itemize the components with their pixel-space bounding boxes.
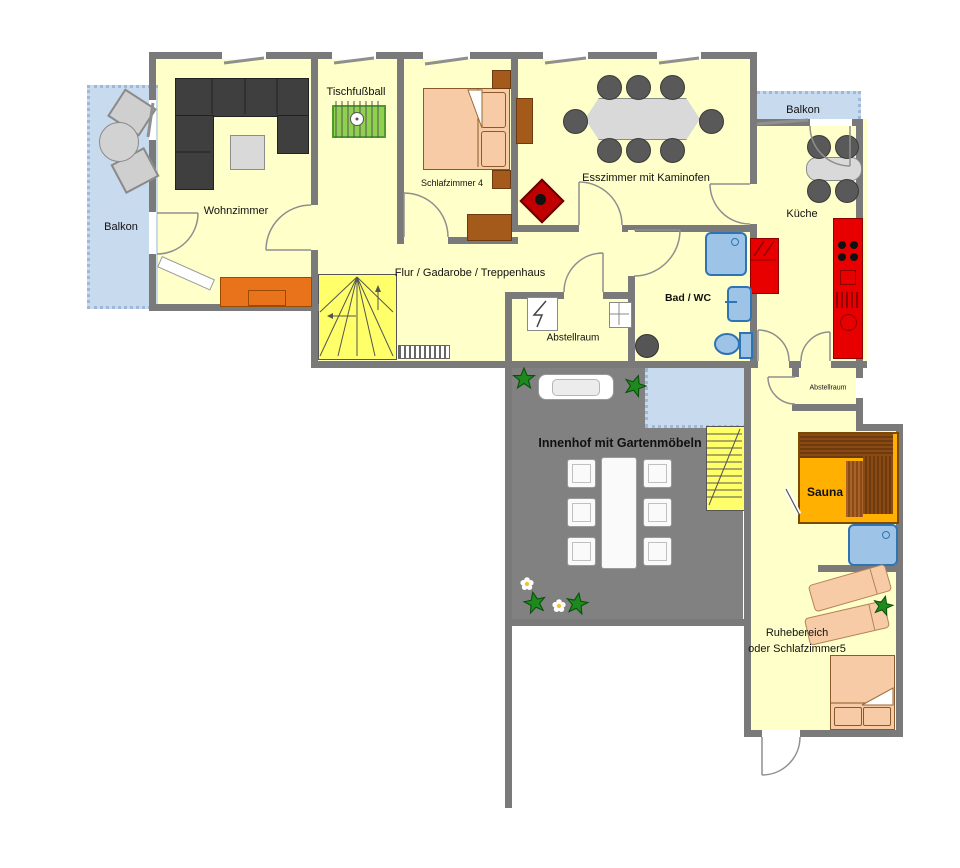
nightstand xyxy=(492,170,511,189)
dining-chair xyxy=(626,75,651,100)
dining-chair xyxy=(597,75,622,100)
dining-chair xyxy=(626,138,651,163)
door-opening xyxy=(404,237,448,244)
window-opening xyxy=(222,52,266,59)
dining-chair xyxy=(563,109,588,134)
garden-table xyxy=(601,457,637,569)
garden-chair xyxy=(643,498,672,527)
pillow xyxy=(834,707,862,726)
stove-burner xyxy=(850,253,858,261)
label-balkon-top: Balkon xyxy=(786,104,820,116)
toilet-tank xyxy=(739,332,753,359)
sofa xyxy=(277,115,309,154)
label-wohnzimmer: Wohnzimmer xyxy=(204,205,269,217)
balcony-door-opening xyxy=(149,212,156,254)
radiator xyxy=(398,345,450,359)
kitchen-vent xyxy=(836,292,858,308)
label-flur: Flur / Gadarobe / Treppenhaus xyxy=(395,267,545,279)
door-opening xyxy=(750,184,757,224)
washbasin xyxy=(727,286,752,322)
sauna-bench xyxy=(800,434,893,458)
wall xyxy=(744,362,751,737)
staircase-main xyxy=(318,274,397,360)
label-tischfussball: Tischfußball xyxy=(327,86,386,98)
wall xyxy=(792,404,863,411)
kitchen-sink-unit xyxy=(840,270,856,285)
wall xyxy=(505,619,748,626)
label-abstellraum-right: Abstellraum xyxy=(810,385,847,392)
utility-sink xyxy=(609,302,632,328)
door-opening xyxy=(758,361,789,368)
stove-burner xyxy=(838,253,846,261)
dresser xyxy=(467,214,512,241)
sauna-bench xyxy=(863,456,893,514)
sauna-shower xyxy=(848,524,898,566)
shower xyxy=(705,232,747,276)
wall xyxy=(311,52,318,311)
electric-panel xyxy=(527,297,558,331)
foosball-table xyxy=(332,105,386,138)
washing-machine xyxy=(635,334,659,358)
label-ruhebereich-2: oder Schlafzimmer5 xyxy=(748,643,846,655)
sauna-bench xyxy=(846,461,863,517)
stove-burner xyxy=(850,241,858,249)
garden-bench-seat xyxy=(552,379,600,396)
door-opening xyxy=(792,377,799,404)
window-opening xyxy=(332,52,376,59)
kitchen-chair xyxy=(835,135,859,159)
garden-chair xyxy=(567,498,596,527)
label-schlafzimmer4: Schlafzimmer 4 xyxy=(421,178,483,188)
window-opening xyxy=(856,378,863,398)
staircase-courtyard xyxy=(706,426,745,511)
pillow xyxy=(863,707,891,726)
dining-chair xyxy=(660,75,685,100)
label-ruhebereich-1: Ruhebereich xyxy=(766,627,828,639)
floor-plan: Balkon Wohnzimmer Tischfußball Schlafzim… xyxy=(0,0,960,868)
balcony-door-opening xyxy=(810,119,852,126)
shower-drain xyxy=(882,531,890,539)
kitchen-chair xyxy=(807,135,831,159)
door-opening xyxy=(628,230,635,276)
terrace xyxy=(645,368,746,428)
sofa xyxy=(175,78,309,117)
dining-chair xyxy=(597,138,622,163)
kitchen-table xyxy=(806,157,862,181)
window-opening xyxy=(423,52,470,59)
kitchen-plate xyxy=(840,314,857,331)
pillow xyxy=(481,131,506,167)
floor-wing-upper xyxy=(751,368,863,432)
kitchen-chair xyxy=(807,179,831,203)
garden-chair xyxy=(643,537,672,566)
label-abstellraum-mid: Abstellraum xyxy=(547,333,600,344)
label-sauna: Sauna xyxy=(807,485,843,499)
door-opening xyxy=(564,292,603,299)
door-opening xyxy=(801,361,831,368)
window-opening xyxy=(543,52,588,59)
stove-burner xyxy=(838,241,846,249)
label-balkon-left: Balkon xyxy=(104,221,138,233)
garden-chair xyxy=(567,459,596,488)
kitchen-unit xyxy=(833,218,863,359)
wall xyxy=(397,52,404,244)
label-innenhof: Innenhof mit Gartenmöbeln xyxy=(538,436,701,450)
wall xyxy=(149,52,156,311)
dining-chair xyxy=(660,138,685,163)
shower-drain xyxy=(731,238,739,246)
dining-chair xyxy=(699,109,724,134)
wall xyxy=(505,292,512,808)
cabinet xyxy=(516,98,533,144)
label-kueche: Küche xyxy=(786,208,817,220)
door-opening xyxy=(579,225,622,232)
sideboard-detail xyxy=(248,290,286,306)
dining-table xyxy=(585,98,700,140)
pillow xyxy=(481,92,506,128)
wood-stove-center xyxy=(535,194,546,205)
window-opening xyxy=(657,52,701,59)
wall xyxy=(311,304,318,368)
sofa xyxy=(175,115,214,190)
label-bad: Bad / WC xyxy=(665,292,711,304)
door-opening xyxy=(311,205,318,250)
garden-chair xyxy=(567,537,596,566)
balcony-table xyxy=(99,122,139,162)
garden-chair xyxy=(643,459,672,488)
fridge xyxy=(750,238,779,294)
exit-door-opening xyxy=(762,730,800,737)
label-esszimmer: Esszimmer mit Kaminofen xyxy=(582,172,710,184)
kitchen-chair xyxy=(835,179,859,203)
nightstand xyxy=(492,70,511,89)
coffee-table xyxy=(230,135,265,170)
